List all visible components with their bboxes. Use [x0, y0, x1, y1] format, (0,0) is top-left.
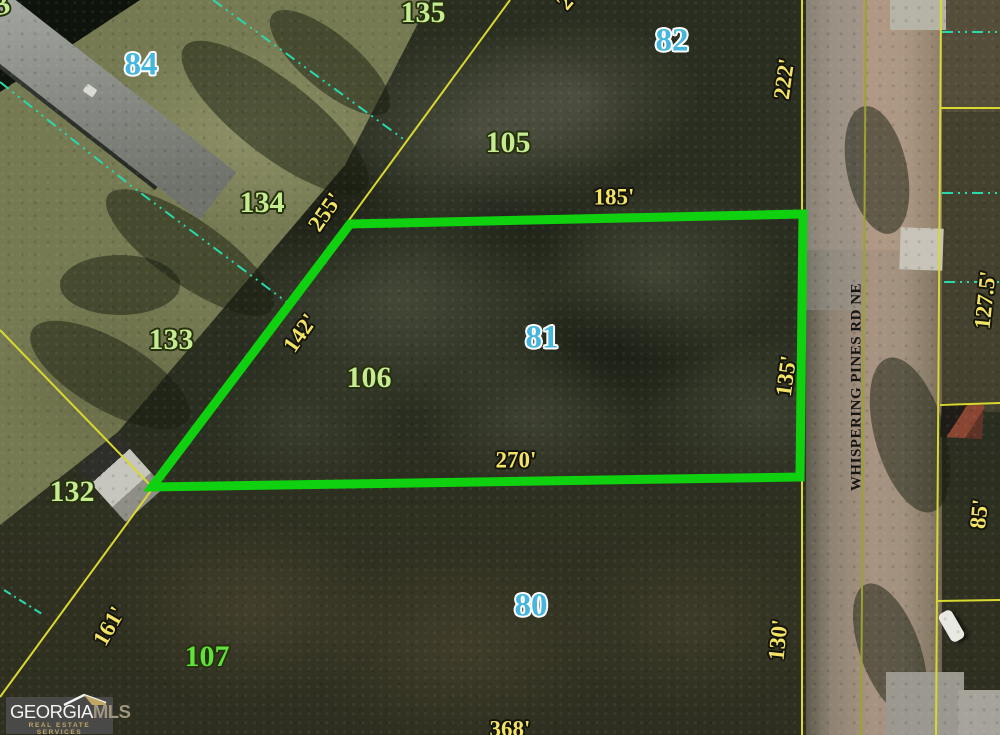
- parcel-number-133: 133: [149, 325, 194, 355]
- dashed-lot-line: [4, 590, 42, 614]
- dimension-label-270: 270': [496, 449, 537, 472]
- parcel-line: [940, 403, 1000, 405]
- street-name-label: WHISPERING PINES RD NE: [850, 283, 865, 491]
- parcel-number-132: 132: [50, 477, 95, 507]
- logo-text-georgia: GEORGIA: [10, 701, 93, 723]
- dimension-label-135: 135': [772, 354, 800, 398]
- aerial-parcel-map: 84 82 81 80 135 134 105 106 133 132 107 …: [0, 0, 1000, 735]
- georgia-mls-logo: GEORGIAMLS REAL ESTATE SERVICES: [6, 697, 113, 734]
- dimension-label-368: 368': [490, 718, 531, 735]
- parcel-number-107: 107: [185, 642, 230, 672]
- dimension-label-185: 185': [594, 186, 635, 209]
- parcel-number-81: 81: [526, 322, 559, 355]
- parcel-line: [937, 600, 1000, 601]
- parcel-line: [0, 330, 152, 487]
- logo-text-mls: MLS: [93, 701, 131, 723]
- parcel-number-80: 80: [515, 590, 548, 623]
- logo-wordmark: GEORGIAMLS: [10, 701, 130, 723]
- highlighted-parcel-outline: [152, 214, 803, 487]
- parcel-number-135: 135: [401, 0, 446, 28]
- dimension-label-85: 85': [966, 498, 992, 530]
- logo-tagline: REAL ESTATE SERVICES: [6, 722, 113, 735]
- dimension-label-130: 130': [764, 618, 791, 661]
- parcel-number-134: 134: [240, 188, 285, 218]
- parcel-number-82: 82: [656, 25, 689, 58]
- dimension-label-127-5: 127.5': [971, 270, 1000, 330]
- parcel-line: [936, 0, 941, 735]
- dimension-label-222: 222': [770, 57, 798, 101]
- parcel-number-105: 105: [486, 128, 531, 158]
- dashed-lot-line: [213, 0, 406, 141]
- parcel-number-84: 84: [125, 49, 158, 82]
- parcel-number-106: 106: [347, 363, 392, 393]
